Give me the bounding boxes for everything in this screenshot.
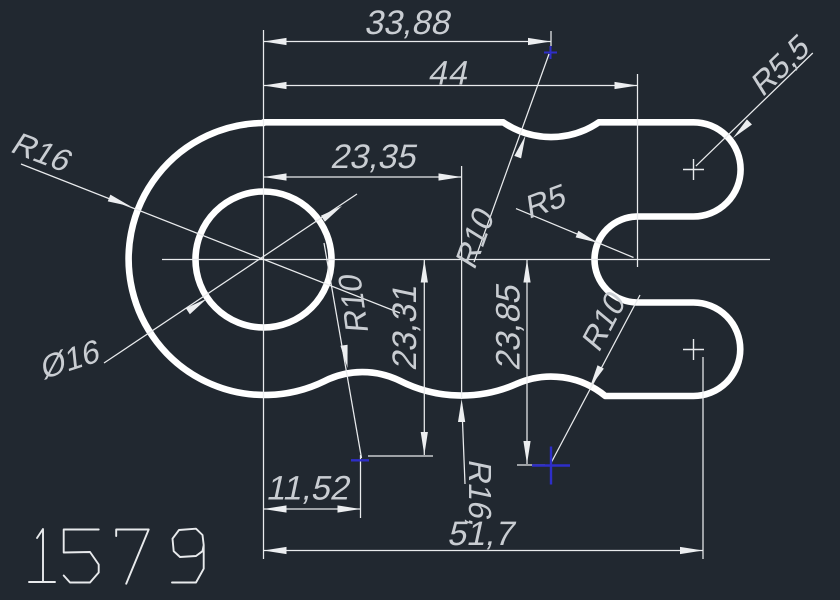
svg-text:33,88: 33,88 (362, 4, 455, 42)
svg-text:44: 44 (426, 55, 474, 93)
svg-text:R16,: R16, (462, 457, 498, 532)
svg-text:23,31: 23,31 (386, 280, 424, 373)
svg-text:11,52: 11,52 (264, 470, 355, 508)
svg-text:23,35: 23,35 (328, 138, 421, 176)
svg-text:23,85: 23,85 (490, 280, 528, 373)
